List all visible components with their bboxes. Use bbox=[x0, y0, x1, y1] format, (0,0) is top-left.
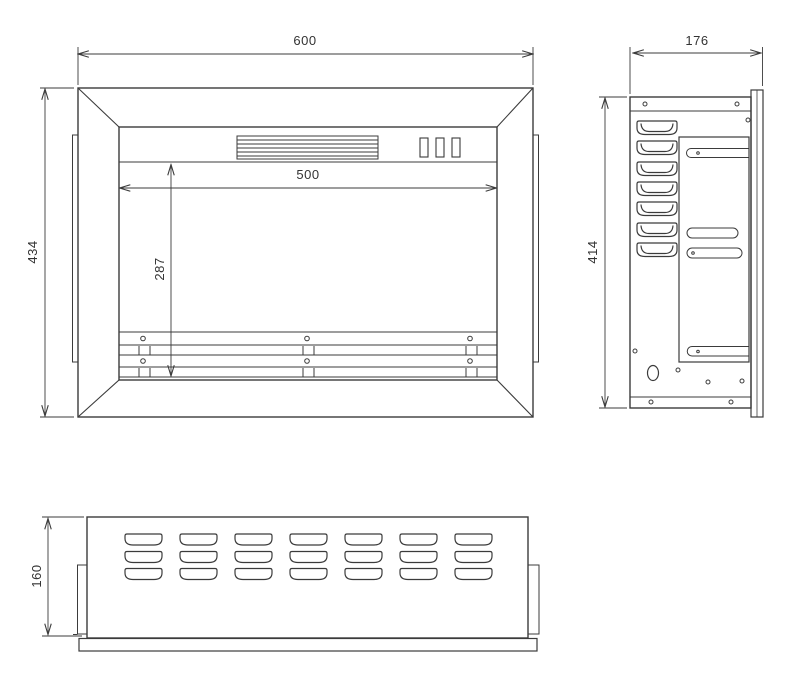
side-bracket-plate bbox=[679, 137, 749, 362]
side-front-frame-bar bbox=[751, 90, 763, 417]
dimension-side-height bbox=[599, 97, 627, 408]
dim-label-opening-height: 287 bbox=[152, 249, 168, 289]
dim-label-side-height: 414 bbox=[585, 232, 601, 272]
technical-drawing-page: 600 434 500 287 176 414 160 bbox=[0, 0, 800, 685]
front-outer-frame bbox=[78, 88, 533, 417]
side-top-screw-right bbox=[735, 102, 739, 106]
bottom-view bbox=[42, 517, 539, 651]
dim-label-side-depth: 176 bbox=[677, 33, 717, 49]
bottom-left-tab bbox=[73, 565, 87, 635]
front-button-2 bbox=[436, 138, 444, 157]
front-bottom-rails bbox=[119, 332, 497, 377]
front-right-flange bbox=[533, 135, 539, 362]
bottom-right-tab bbox=[528, 565, 539, 634]
front-rail-slots bbox=[139, 346, 477, 377]
side-bottom-screw-right bbox=[729, 400, 733, 404]
front-inner-opening bbox=[119, 127, 497, 380]
bottom-vent-grid bbox=[125, 534, 492, 580]
dim-label-opening-width: 500 bbox=[288, 167, 328, 183]
side-view bbox=[599, 47, 763, 417]
front-button-1 bbox=[420, 138, 428, 157]
dimension-front-height bbox=[40, 88, 74, 417]
dimension-front-width bbox=[78, 47, 533, 85]
side-top-screw-left bbox=[643, 102, 647, 106]
side-bracket-slots bbox=[687, 149, 750, 357]
front-rail-screws bbox=[141, 336, 473, 363]
dim-label-front-height: 434 bbox=[25, 232, 41, 272]
front-control-buttons bbox=[420, 138, 460, 157]
dim-label-front-width: 600 bbox=[285, 33, 325, 49]
side-bottom-screw-left bbox=[649, 400, 653, 404]
front-button-3 bbox=[452, 138, 460, 157]
bottom-front-flange bbox=[79, 639, 537, 652]
front-view bbox=[40, 47, 539, 417]
side-body bbox=[630, 97, 751, 408]
front-left-flange bbox=[73, 135, 79, 362]
front-bevel-lines bbox=[78, 88, 533, 417]
technical-drawing-svg bbox=[0, 0, 800, 685]
dim-label-base-depth: 160 bbox=[29, 556, 45, 596]
side-louvers bbox=[637, 121, 677, 257]
bottom-body bbox=[87, 517, 528, 638]
front-vent-grille bbox=[237, 136, 378, 159]
dimension-side-depth bbox=[630, 47, 763, 94]
side-cable-hole bbox=[648, 366, 659, 381]
